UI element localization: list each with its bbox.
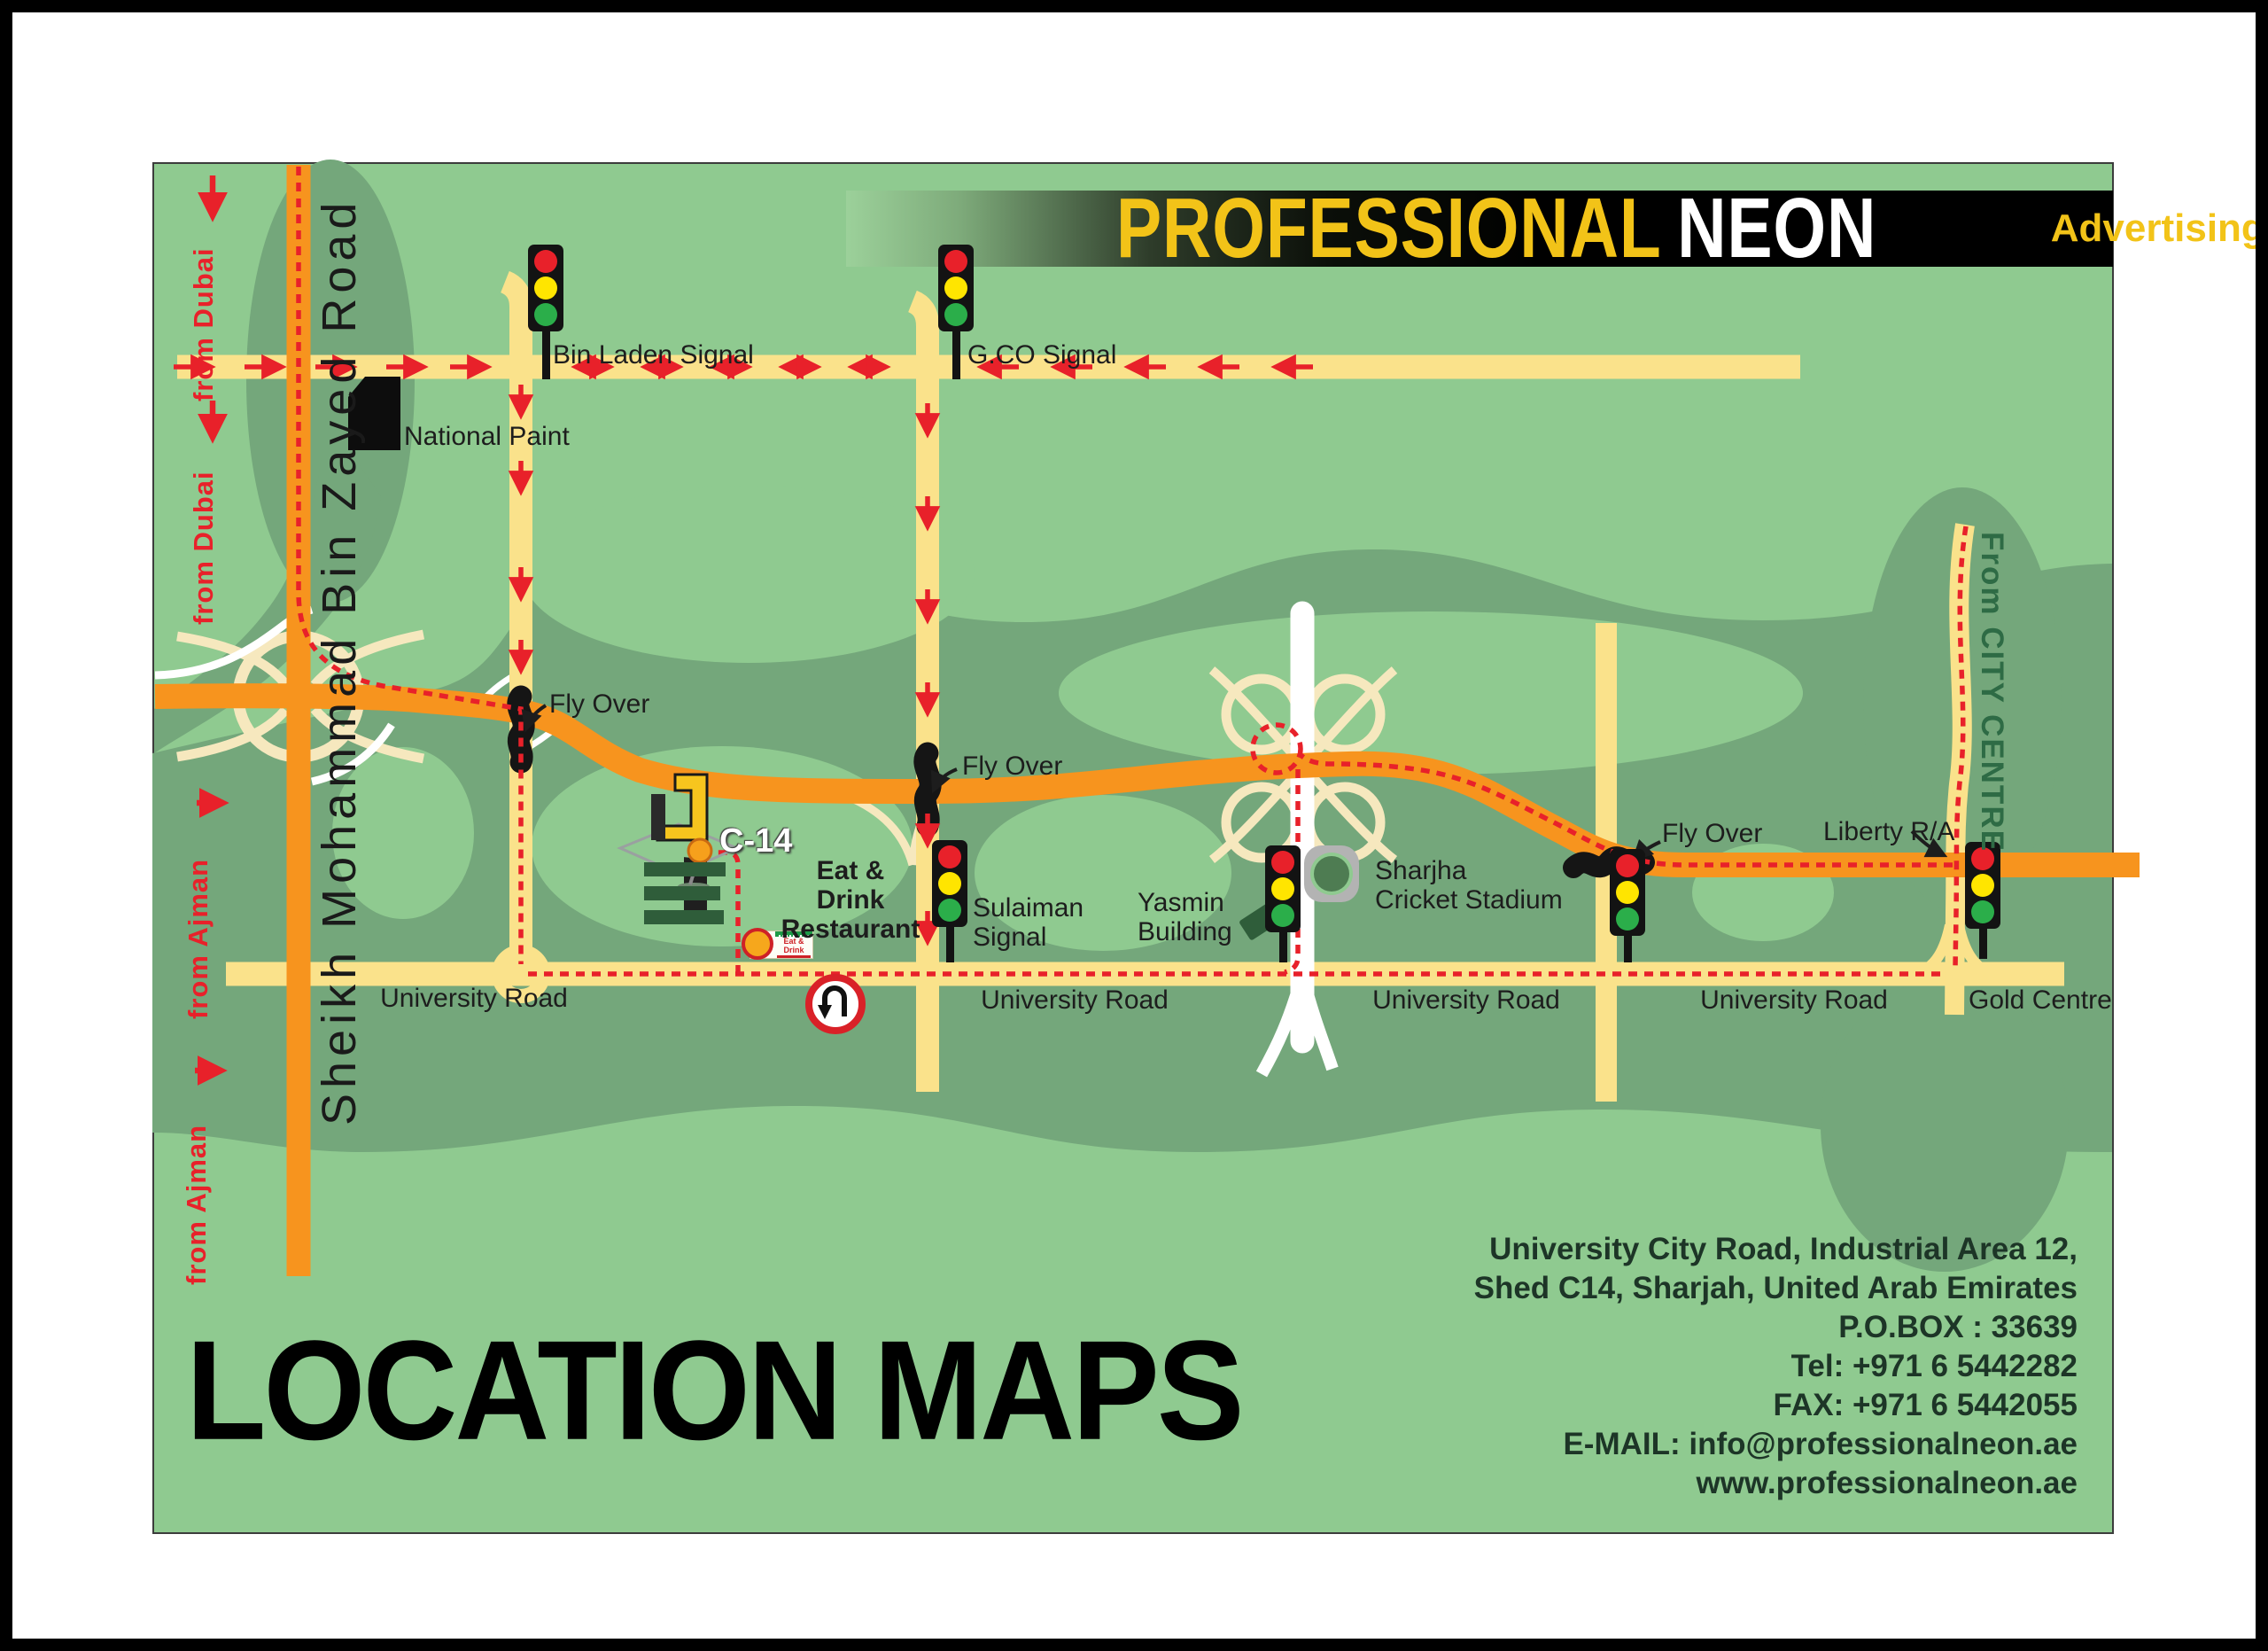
university-road-label-3: University Road (1372, 985, 1560, 1015)
traffic-light-road3 (1610, 849, 1645, 962)
university-road-label-4: University Road (1700, 985, 1888, 1015)
brand-secondary: NEON (1677, 181, 1876, 276)
green-shed-row-3 (644, 910, 724, 924)
contact-block: University City Road, Industrial Area 12… (1474, 1230, 2078, 1503)
fly-over-label-1: Fly Over (549, 689, 649, 719)
u-turn-sign (809, 977, 862, 1031)
sulaiman-line-2: Signal (973, 923, 1084, 952)
eat-drink-line-1: Eat & Drink (780, 856, 921, 915)
stadium-line-2: Cricket Stadium (1375, 885, 1563, 915)
cricket-stadium-label: Sharjha Cricket Stadium (1375, 856, 1563, 915)
brand-tagline: Advertising (2051, 206, 2265, 251)
yasmin-building-label: Yasmin Building (1138, 888, 1232, 946)
green-shed-row-2 (644, 886, 720, 900)
shed-pillar (651, 794, 665, 840)
yasmin-line-2: Building (1138, 917, 1232, 946)
contact-email: E-MAIL: info@professionalneon.ae (1474, 1425, 2078, 1464)
badge-red-band (777, 955, 811, 958)
contact-address-line-1: University City Road, Industrial Area 12… (1474, 1230, 2078, 1269)
university-road-label-1: University Road (380, 984, 568, 1013)
liberty-ra-label: Liberty R/A (1823, 817, 1954, 846)
from-city-centre-label: From CITY CENTRE (1974, 532, 2009, 913)
page-title: LOCATION MAPS (186, 1310, 1242, 1473)
contact-pobox: P.O.BOX : 33639 (1474, 1308, 2078, 1347)
from-ajman-label-1: from Ajman (183, 833, 214, 1019)
restaurant-logo-icon (742, 928, 773, 960)
header-banner: PROFESSIONALNEON Advertising (846, 191, 2113, 267)
pin-head (688, 839, 711, 862)
c14-label: C-14 (719, 822, 792, 861)
cricket-stadium-icon (1304, 845, 1359, 902)
stadium-line-1: Sharjha (1375, 856, 1563, 885)
eat-drink-restaurant-label: Eat & Drink Restaurant (780, 856, 921, 944)
yasmin-line-1: Yasmin (1138, 888, 1232, 917)
fly-over-label-3: Fly Over (1662, 819, 1762, 848)
contact-address-line-2: Shed C14, Sharjah, United Arab Emirates (1474, 1269, 2078, 1308)
gco-signal-label: G.CO Signal (967, 340, 1116, 370)
from-ajman-label-2: from Ajman (181, 1099, 213, 1285)
brand-primary: PROFESSIONAL (1116, 181, 1662, 276)
sulaiman-signal-label: Sulaiman Signal (973, 893, 1084, 952)
page: PROFESSIONALNEON Advertising Eat & Drink… (0, 0, 2268, 1651)
contact-website: www.professionalneon.ae (1474, 1464, 2078, 1503)
from-dubai-label-1: from Dubai (188, 229, 220, 401)
eat-drink-line-2: Restaurant (780, 915, 921, 944)
university-road-label-2: University Road (981, 985, 1169, 1015)
from-dubai-label-2: from Dubai (188, 452, 220, 625)
sulaiman-line-1: Sulaiman (973, 893, 1084, 923)
bin-laden-signal-label: Bin Laden Signal (553, 340, 754, 370)
green-shed-row-1 (644, 862, 726, 876)
contact-tel: Tel: +971 6 5442282 (1474, 1347, 2078, 1386)
brand-lockup: PROFESSIONALNEON (1116, 180, 1876, 277)
contact-fax: FAX: +971 6 5442055 (1474, 1386, 2078, 1425)
sheikh-mohammad-bin-zayed-road-label: Sheikh Mohammad Bin Zayed Road (312, 173, 367, 1125)
traffic-light-sulaiman (932, 840, 967, 962)
gold-centre-label: Gold Centre (1969, 985, 2112, 1015)
fly-over-label-2: Fly Over (962, 752, 1062, 781)
traffic-light-yasmin (1265, 845, 1301, 962)
national-paint-label: National Paint (404, 422, 570, 451)
